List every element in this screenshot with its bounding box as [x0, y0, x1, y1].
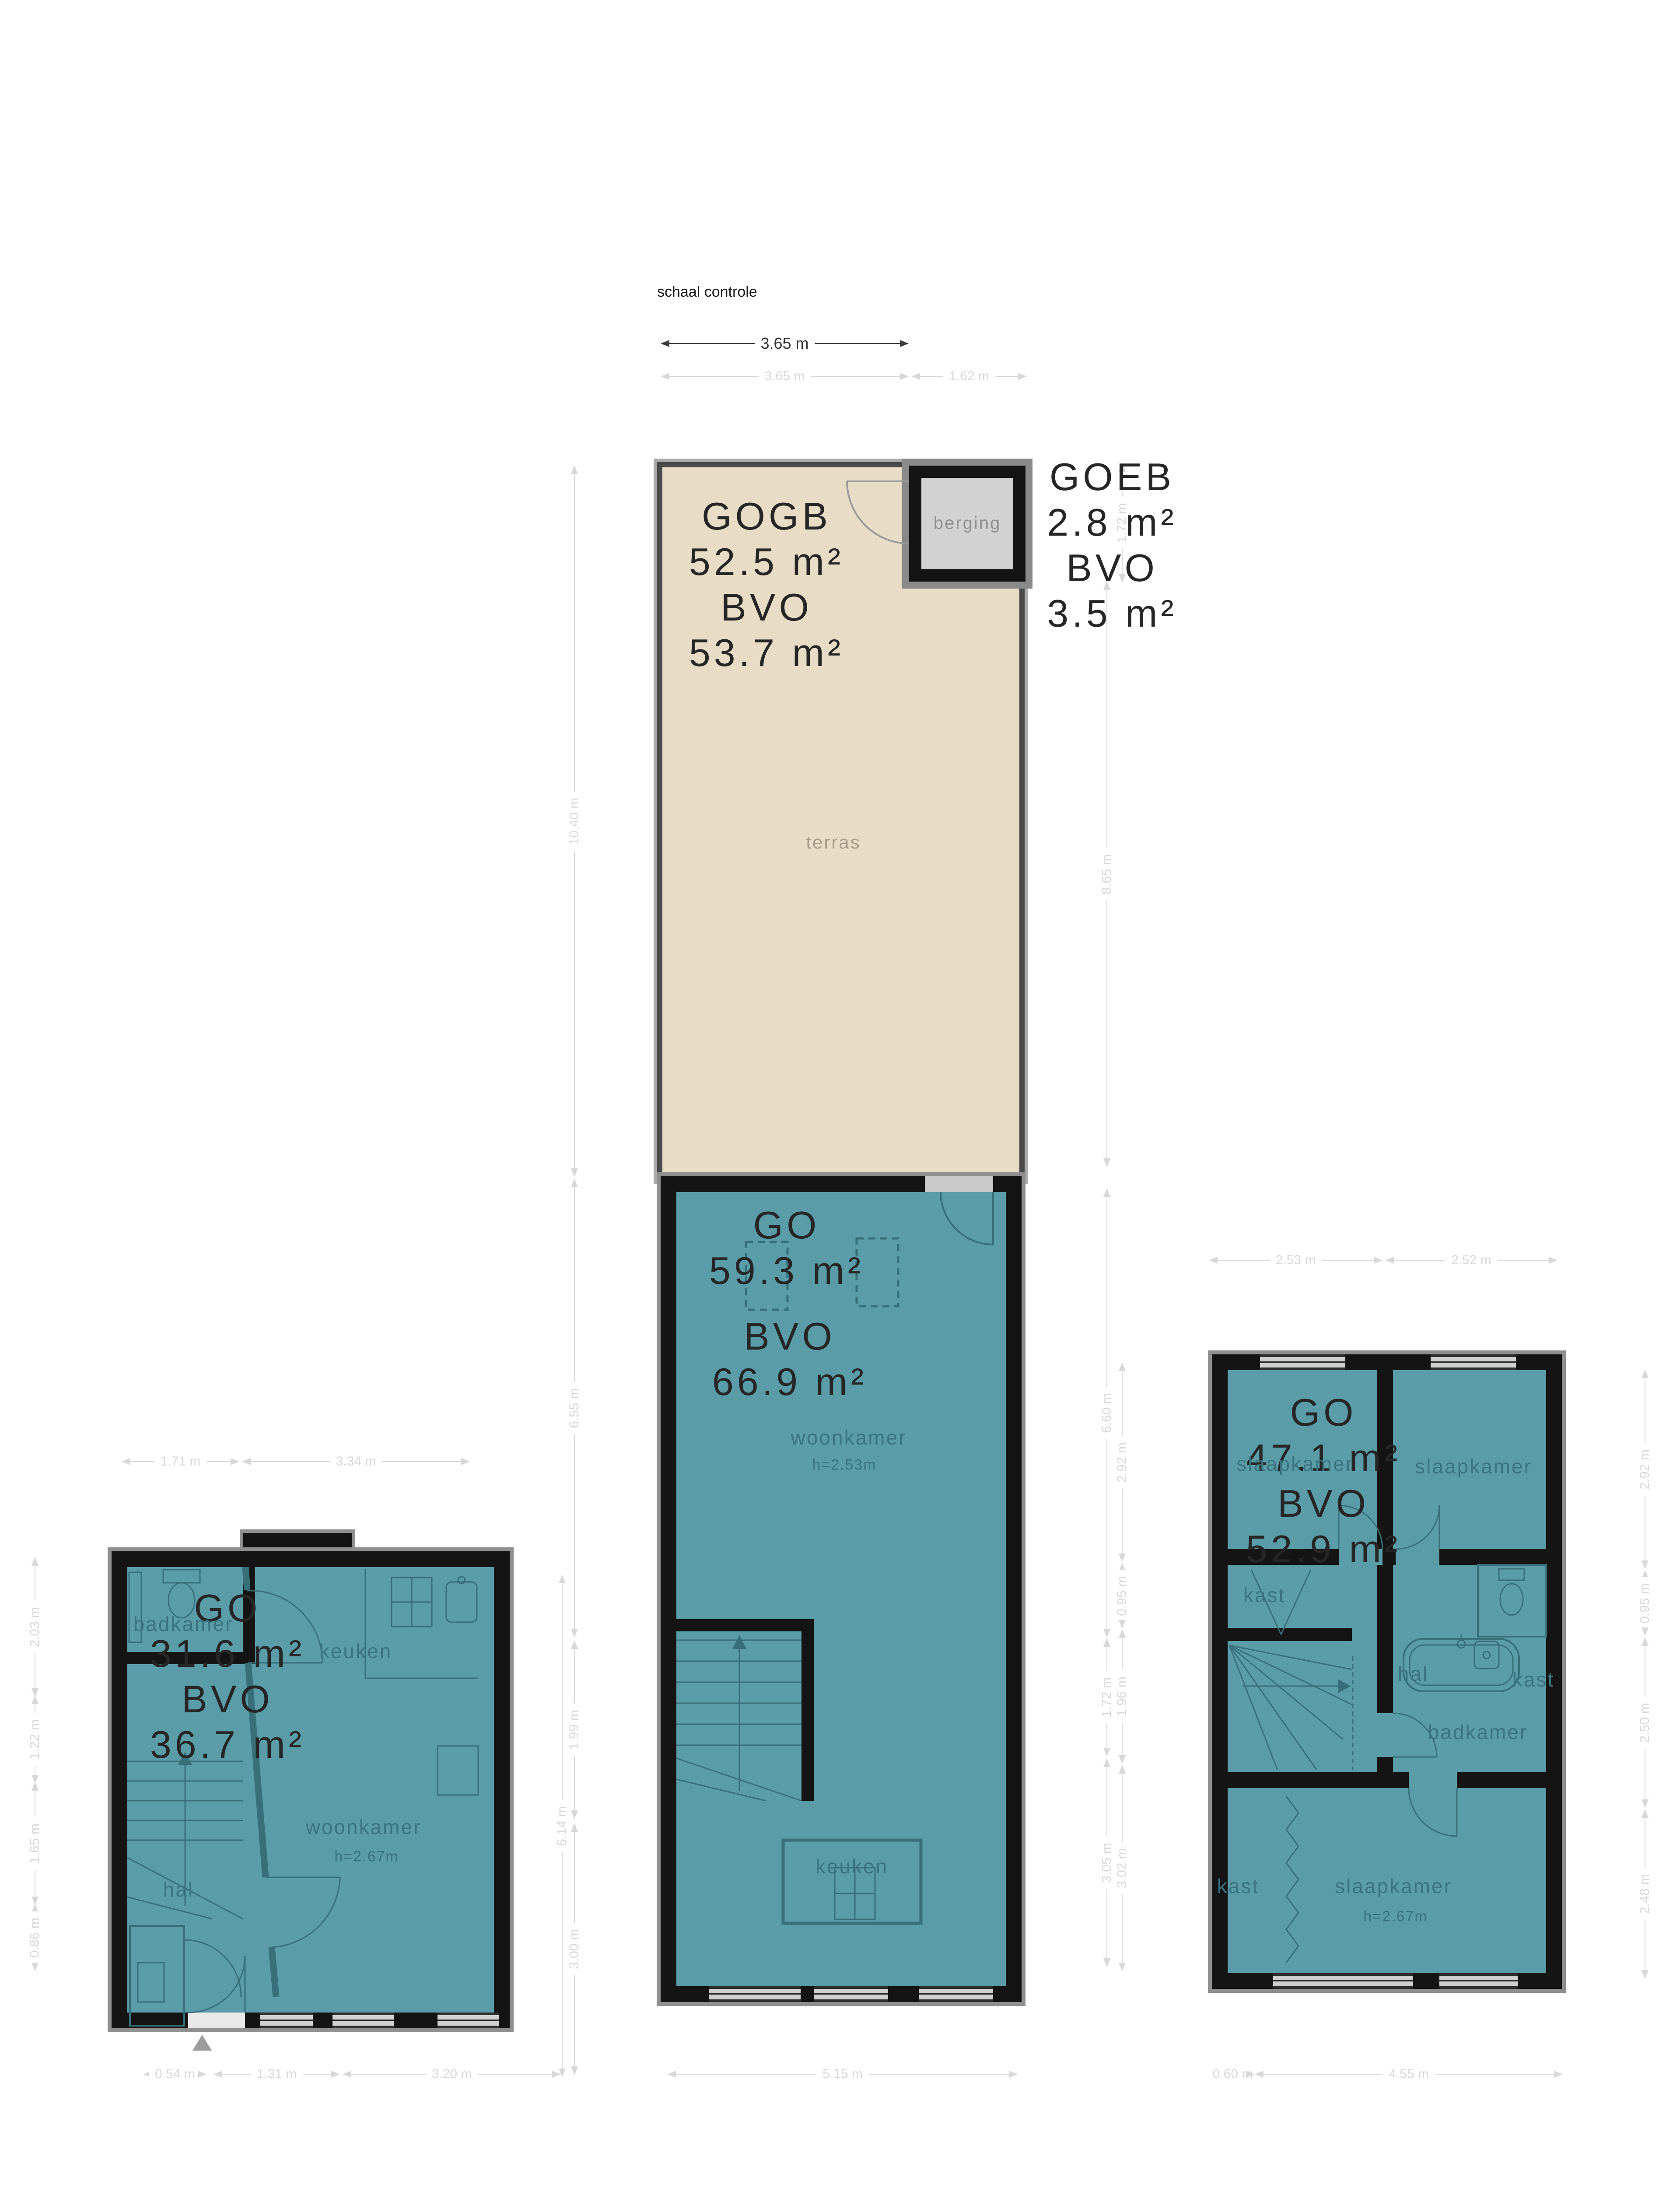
go-value: 59.3 m²: [709, 1248, 864, 1294]
bvo-value: 3.5 m²: [1047, 591, 1177, 636]
room-label-kast: kast: [1243, 1583, 1285, 1607]
bvo-label: BVO: [1246, 1481, 1401, 1526]
bvo-value: 52.9 m²: [1246, 1526, 1401, 1572]
room-label-hal: hal: [1398, 1662, 1428, 1686]
gogb-label: GOGB: [689, 494, 844, 539]
room-height-label: h=2.67m: [1363, 1908, 1428, 1925]
bvo-label: BVO: [712, 1314, 867, 1359]
cupboard: [437, 1746, 478, 1795]
north-arrow-icon: [192, 2035, 212, 2051]
area-text-right: GO 47.1 m² BVO 52.9 m²: [1246, 1390, 1401, 1572]
sink-icon: [446, 1577, 477, 1622]
plan-right: GO 47.1 m² BVO 52.9 m² slaapkamer slaapk…: [1212, 1354, 1562, 1989]
bvo-value: 66.9 m²: [712, 1359, 867, 1405]
area-text-storage: GOEB 2.8 m² BVO 3.5 m²: [1047, 454, 1177, 636]
area-text-terrace: GOGB 52.5 m² BVO 53.7 m²: [689, 494, 844, 676]
front-door-arc-icon: [188, 1956, 245, 2013]
meter-closet: [130, 1926, 241, 2026]
room-label-terras: terras: [806, 832, 861, 853]
room-label-woonkamer: woonkamer: [306, 1815, 422, 1839]
goeb-label: GOEB: [1047, 454, 1177, 500]
area-text-middle-go: GO 59.3 m²: [709, 1203, 864, 1294]
room-label-kast: kast: [1512, 1668, 1554, 1691]
room-label-kast: kast: [1217, 1874, 1259, 1898]
room-label-badkamer: badkamer: [1428, 1720, 1528, 1744]
stairs-icon: [1229, 1645, 1353, 1770]
bvo-value: 36.7 m²: [150, 1722, 305, 1767]
stove-icon: [392, 1578, 432, 1627]
toilet-icon: [1499, 1569, 1524, 1615]
room-label-slaapkamer: slaapkamer: [1415, 1455, 1532, 1478]
door-arc-icon: [941, 1192, 993, 1245]
room-label-hal: hal: [163, 1878, 194, 1901]
plan-left: GO 31.6 m² BVO 36.7 m² badkamer keuken h…: [112, 1551, 510, 2028]
door-arc-icon: [1409, 1788, 1457, 1836]
room-height-label: h=2.53m: [812, 1457, 876, 1474]
goeb-value: 2.8 m²: [1047, 500, 1177, 545]
toilet-room: [1478, 1565, 1546, 1637]
bvo-label: BVO: [1047, 545, 1177, 591]
door-arc-icon: [1396, 1505, 1439, 1549]
room-label-badkamer: badkamer: [133, 1612, 234, 1636]
door-arc-icon: [266, 1877, 340, 1947]
folding-closet-doors-icon: [1286, 1796, 1298, 1963]
go-label: GO: [1246, 1390, 1401, 1435]
room-height-label: h=2.67m: [334, 1848, 399, 1865]
room-label-berging: berging: [934, 514, 1001, 533]
go-value: 31.6 m²: [150, 1631, 305, 1676]
stairs-icon: [676, 1635, 801, 1801]
area-text-middle-bvo: BVO 66.9 m²: [712, 1314, 867, 1405]
bvo-label: BVO: [689, 585, 844, 630]
plan-middle: GO 59.3 m² BVO 66.9 m² woonkamer h=2.53m…: [661, 1176, 1022, 2002]
gogb-value: 52.5 m²: [689, 539, 844, 585]
go-label: GO: [709, 1203, 864, 1248]
bvo-label: BVO: [150, 1676, 305, 1722]
floorplan-page: schaal controle 3.65 m3.65 m1.62 m1.71 m…: [0, 0, 1680, 2188]
room-label-keuken: keuken: [319, 1639, 392, 1663]
bvo-value: 53.7 m²: [689, 630, 844, 676]
room-label-keuken: keuken: [815, 1855, 888, 1878]
room-label-woonkamer: woonkamer: [791, 1426, 907, 1449]
wall-projection: [243, 1533, 352, 1554]
room-label-slaapkamer: slaapkamer: [1335, 1874, 1452, 1898]
kitchen-island: [783, 1840, 921, 1923]
room-label-slaapkamer: slaapkamer: [1236, 1452, 1354, 1476]
